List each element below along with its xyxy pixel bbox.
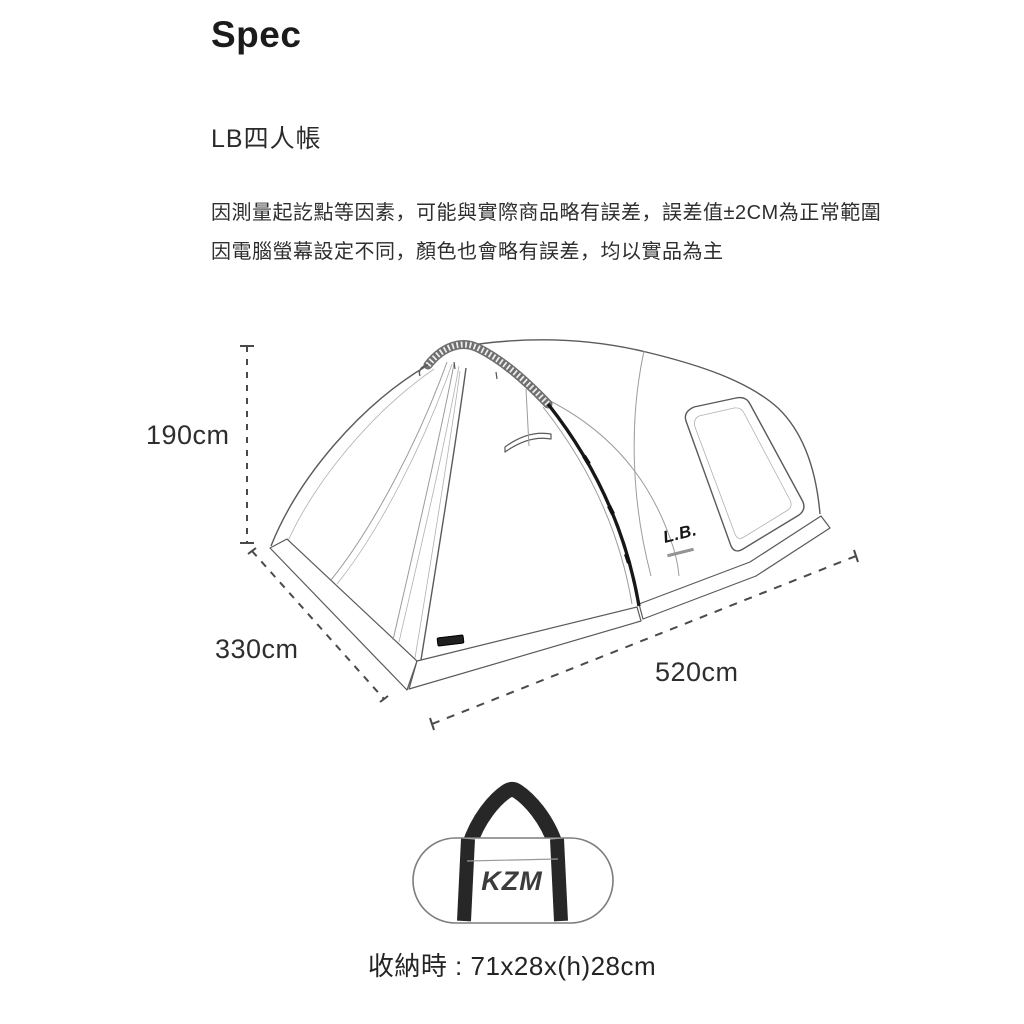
canopy-seam-2: [393, 364, 454, 640]
bag-kzm-logo: KZM: [472, 866, 552, 897]
disclaimer-line-1: 因測量起訖點等因素，可能與實際商品略有誤差，誤差值±2CM為正常範圍: [211, 194, 881, 233]
disclaimer-line-2: 因電腦螢幕設定不同，顏色也會略有誤差，均以實品為主: [211, 233, 881, 272]
depth-dimension-label: 330cm: [215, 634, 299, 665]
storage-bag-illustration: [413, 790, 613, 924]
sleeve-hook-1: [454, 362, 455, 369]
rear-window-outer: [685, 398, 804, 551]
height-dimension-label: 190cm: [146, 420, 230, 451]
disclaimer-text: 因測量起訖點等因素，可能與實際商品略有誤差，誤差值±2CM為正常範圍 因電腦螢幕…: [211, 194, 881, 272]
dome-seam-b: [634, 351, 651, 576]
rear-window-inner: [695, 408, 792, 539]
zipper-sliders: [584, 456, 629, 563]
front-left-skirt: [270, 539, 417, 690]
door-arch-inner: [543, 407, 632, 604]
page-title: Spec: [211, 14, 301, 56]
tent-illustration: [270, 340, 830, 690]
width-dim-line: [432, 556, 856, 724]
sleeve-hook-2: [496, 372, 497, 379]
canopy-seam-1: [331, 362, 447, 580]
depth-dim-cap-bottom: [380, 696, 388, 702]
spec-page: Spec LB四人帳 因測量起訖點等因素，可能與實際商品略有誤差，誤差值±2CM…: [0, 0, 1024, 1024]
front-floor-strip: [409, 607, 641, 689]
canopy-left-edge-inner: [284, 369, 434, 550]
product-name: LB四人帳: [211, 119, 322, 155]
width-dimension-label: 520cm: [655, 657, 739, 688]
storage-size-label: 收納時 : 71x28x(h)28cm: [262, 946, 762, 983]
bag-strap-left: [464, 839, 468, 921]
canopy-left-edge: [271, 365, 428, 546]
canopy-seam-1b: [337, 364, 452, 584]
bag-strap-right: [557, 839, 561, 921]
door-arch-zipper: [548, 404, 639, 606]
pole-sleeve-band: [428, 345, 548, 404]
